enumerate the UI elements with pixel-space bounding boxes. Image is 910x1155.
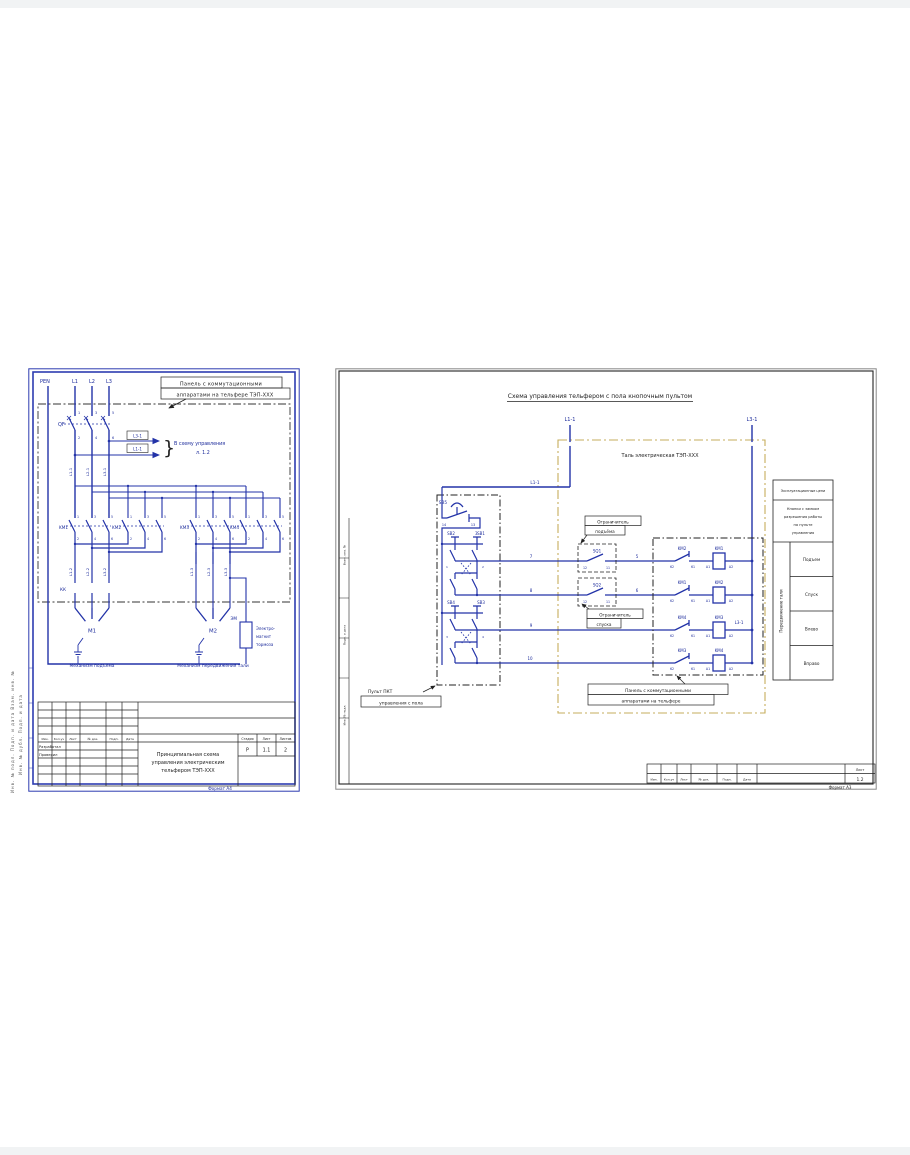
sq1-label: SQ1 <box>593 549 602 554</box>
wire-l3-2: L3-2 <box>102 567 107 576</box>
phase-l3-label: L3 <box>106 379 112 385</box>
qf-num-6: 6 <box>112 436 114 440</box>
c61: 61 <box>691 565 695 569</box>
c61: 61 <box>691 599 695 603</box>
sb5-n14: 14 <box>442 523 446 527</box>
sb5-label: SB5 <box>439 500 448 505</box>
tb-col-list: Лист <box>69 737 77 741</box>
tb-row-checked: Проверил <box>39 753 57 757</box>
sb1-label: SB1 <box>477 531 485 536</box>
m2-tag: М2 <box>209 629 217 635</box>
cnum: 5 <box>232 515 234 519</box>
a2: А2 <box>729 565 733 569</box>
wire-6: 6 <box>636 588 639 593</box>
a3-stamp-3: Инв. № подл. <box>343 705 347 726</box>
legend-vertical-label: Передвижение тали <box>779 589 784 633</box>
wire-7: 7 <box>530 554 533 559</box>
strip-sheet-label: Лист <box>856 768 865 772</box>
a3-frame: Взам. инв. № Подп. и дата Инв. № подл. <box>336 369 876 789</box>
scanned-drawing-page: Инв. № подл. Подп. и дата Взам. инв. № И… <box>0 0 910 1155</box>
doc-title-line2: управления электрическим <box>152 760 225 766</box>
wire-5: 5 <box>636 554 639 559</box>
a2: А2 <box>729 634 733 638</box>
cnum: 5 <box>111 515 113 519</box>
wire-9: 9 <box>530 623 533 628</box>
row1-contact-label: KM2 <box>678 546 687 551</box>
wire-l2-2: L2-2 <box>85 567 90 576</box>
pen-label: PEN <box>40 379 50 385</box>
cnum: 6 <box>282 537 284 541</box>
strip-col-koluch: Кол.уч <box>664 778 675 782</box>
doc-title-line3: тельфером ТЭП-ХХХ <box>161 768 215 774</box>
cnum: 5 <box>282 515 284 519</box>
cnum: 5 <box>164 515 166 519</box>
left-margin-stamp-1: Инв. № подл. Подп. и дата Взам. инв. № <box>10 670 15 793</box>
cnum: 2 <box>198 537 200 541</box>
wire-l3-1: L3-1 <box>102 467 107 476</box>
cnum: 6 <box>232 537 234 541</box>
a3-drawing-svg: Взам. инв. № Подп. и дата Инв. № подл. С… <box>335 368 877 790</box>
pendant-callout-line2: управления с пола <box>379 701 423 706</box>
cnum: 4 <box>94 537 96 541</box>
l1-top-label: L1-1 <box>565 417 576 423</box>
kk-label: КК <box>60 587 66 592</box>
page-bottom-band <box>0 1147 910 1155</box>
cnum: 4 <box>147 537 149 541</box>
tb-sheets-header: Листов <box>280 737 292 741</box>
tb-col-izm: Изм. <box>41 737 48 741</box>
wire-l1-2: L1-2 <box>68 567 73 576</box>
sq2-label: SQ2 <box>593 583 602 588</box>
m1-tag: М1 <box>88 629 96 635</box>
a3-stamp-1: Взам. инв. № <box>343 545 347 565</box>
cnum: 3 <box>215 515 217 519</box>
sheet-a3-control-schematic: Взам. инв. № Подп. и дата Инв. № подл. С… <box>335 368 877 790</box>
to-control-text-1: В схему управления <box>174 441 225 447</box>
cnum: 2 <box>77 537 79 541</box>
strip-col-dok: № док. <box>699 778 710 782</box>
phase-l2-label: L2 <box>89 379 95 385</box>
l3-top-label: L3-1 <box>747 417 758 423</box>
row3-coil-label: KM3 <box>715 615 724 620</box>
a4-drawing-svg: Панель с коммутационными аппаратами на т… <box>28 368 300 792</box>
tb-col-dok: № док. <box>88 737 99 741</box>
tb-stage-header: Стадия <box>241 737 253 741</box>
cnum: 2 <box>130 537 132 541</box>
a3-format-label: Формат А3 <box>829 785 852 790</box>
to-control-text-2: л. 1.2 <box>196 450 210 456</box>
tb-stage-value: Р <box>246 748 249 754</box>
m1-caption: Механизм подъёма <box>70 663 115 669</box>
a3-title: Схема управления тельфером с пола кнопоч… <box>508 393 692 400</box>
em-caption-3: тормоза <box>256 642 274 647</box>
cnum: 3 <box>94 515 96 519</box>
legend-row-right: Вправо <box>804 661 820 666</box>
strip-col-izm: Изм. <box>650 778 657 782</box>
tb-col-data: Дата <box>126 737 134 741</box>
tb-sheet-value: 1.1 <box>263 748 271 754</box>
wire-l1-1: L1-1 <box>68 467 73 476</box>
branch-wire-l3-1: L3-1 <box>133 434 142 439</box>
cnum: 3 <box>147 515 149 519</box>
c62: 62 <box>670 565 674 569</box>
cnum: 2 <box>248 537 250 541</box>
cnum: 1 <box>248 515 250 519</box>
wire-l2-3: L2-3 <box>206 567 211 576</box>
qf-num-5: 5 <box>112 411 114 415</box>
btn-n2: 2 <box>482 565 484 569</box>
wire-l3-3: L3-3 <box>223 567 228 576</box>
c61: 61 <box>691 634 695 638</box>
brace-glyph: } <box>163 437 175 459</box>
qf-label: QF <box>58 422 65 428</box>
a1: А1 <box>706 599 710 603</box>
legend-lock-2: разрешения работы <box>784 515 822 519</box>
row4-contact-label: KM3 <box>678 648 687 653</box>
row1-coil-label: KM1 <box>715 546 724 551</box>
c62: 62 <box>670 634 674 638</box>
m2-caption: Механизм передвижения тали <box>177 663 249 669</box>
panel-note-line1: Панель с коммутационными <box>180 382 262 388</box>
phase-l1-label: L1 <box>72 379 78 385</box>
left-margin-stamp-2: Инв. № дубл. Подп. и дата <box>18 694 23 775</box>
sq1-n12: 12 <box>583 566 587 570</box>
tb-sheets-value: 2 <box>284 748 287 754</box>
sq2-callout-line2: спуска <box>597 622 612 627</box>
sq1-callout-line1: Ограничитель <box>597 519 629 524</box>
legend-row-down: Спуск <box>805 592 818 597</box>
sb5-n13: 13 <box>471 523 475 527</box>
row3-contact-label: KM4 <box>678 615 687 620</box>
row4-coil-label: KM4 <box>715 648 724 653</box>
a1: А1 <box>706 634 710 638</box>
sq2-n11: 11 <box>606 600 610 604</box>
cnum: 1 <box>77 515 79 519</box>
sb3-label: SB3 <box>477 600 485 605</box>
tb-row-developed: Разработал <box>39 745 61 749</box>
legend-lock-4: управления <box>792 531 814 535</box>
sheet-a4-power-schematic: Панель с коммутационными аппаратами на т… <box>28 368 300 792</box>
wire-10: 10 <box>527 656 533 661</box>
cnum: 6 <box>111 537 113 541</box>
strip-col-list: Лист <box>680 778 688 782</box>
qf-num-4: 4 <box>95 436 97 440</box>
l1-feed-label: L1-1 <box>530 480 540 485</box>
sq1-callout-line2: подъёма <box>595 529 615 534</box>
cnum: 4 <box>215 537 217 541</box>
legend-row-up: Подъем <box>803 557 820 562</box>
c61: 61 <box>691 667 695 671</box>
row2-coil-label: KM2 <box>715 580 724 585</box>
a4-format-label: Формат А4 <box>208 786 232 791</box>
cnum: 1 <box>130 515 132 519</box>
legend-header: Эксплуатационные цепи <box>781 489 825 493</box>
sb4-label: SB4 <box>447 600 455 605</box>
btn-n3: 3 <box>446 635 448 639</box>
row2-contact-label: KM1 <box>678 580 687 585</box>
panel-note-line2: аппаратами на тельфере ТЭП-ХХХ <box>176 393 273 399</box>
qf-num-3: 3 <box>95 411 97 415</box>
cnum: 1 <box>198 515 200 519</box>
tb-col-koluch: Кол.уч <box>54 737 65 741</box>
a1: А1 <box>706 565 710 569</box>
page-top-band <box>0 0 910 8</box>
wire-l1-3: L1-3 <box>189 567 194 576</box>
pendant-callout-line1: Пульт ПКТ <box>368 689 393 695</box>
em-caption-1: Электро- <box>256 626 276 631</box>
doc-title-line1: Принципиальная схема <box>157 752 219 758</box>
wire-8: 8 <box>530 588 533 593</box>
btn-n4: 4 <box>482 635 484 639</box>
em-tag: ЭМ <box>230 616 237 621</box>
panel-callout-line1: Панель с коммутационными <box>625 688 691 694</box>
strip-sheet-number: 1.2 <box>857 777 864 783</box>
sq2-n12: 12 <box>583 600 587 604</box>
cnum: 6 <box>164 537 166 541</box>
a2: А2 <box>729 667 733 671</box>
legend-row-left: Влево <box>805 627 819 632</box>
btn-n1: 1 <box>446 565 448 569</box>
wire-l2-1: L2-1 <box>85 467 90 476</box>
a1: А1 <box>706 667 710 671</box>
c62: 62 <box>670 667 674 671</box>
em-caption-2: магнит <box>256 634 272 639</box>
cnum: 4 <box>265 537 267 541</box>
hoist-label: Таль электрическая ТЭП-ХХХ <box>620 453 699 459</box>
legend-lock-3: на пульте <box>794 523 814 527</box>
tb-sheet-header: Лист <box>262 737 270 741</box>
qf-num-2: 2 <box>78 436 80 440</box>
sb2-label: SB2 <box>447 531 455 536</box>
a3-stamp-2: Подп. и дата <box>343 625 347 646</box>
cnum: 3 <box>265 515 267 519</box>
sq2-callout-line1: Ограничитель <box>599 612 631 617</box>
strip-col-data: Дата <box>743 778 751 782</box>
a4-frame <box>29 369 299 791</box>
l3-1-mid-label: L3-1 <box>735 620 744 625</box>
a2: А2 <box>729 599 733 603</box>
c62: 62 <box>670 599 674 603</box>
panel-callout-line2: аппаратами на тельфере <box>622 699 681 705</box>
strip-col-podp: Подп. <box>722 778 731 782</box>
legend-lock-1: Кнопки с замком <box>787 507 819 511</box>
qf-num-1: 1 <box>78 411 80 415</box>
sq1-n11: 11 <box>606 566 610 570</box>
branch-wire-l1-1: L1-1 <box>133 447 142 452</box>
tb-col-podp: Подп. <box>109 737 118 741</box>
